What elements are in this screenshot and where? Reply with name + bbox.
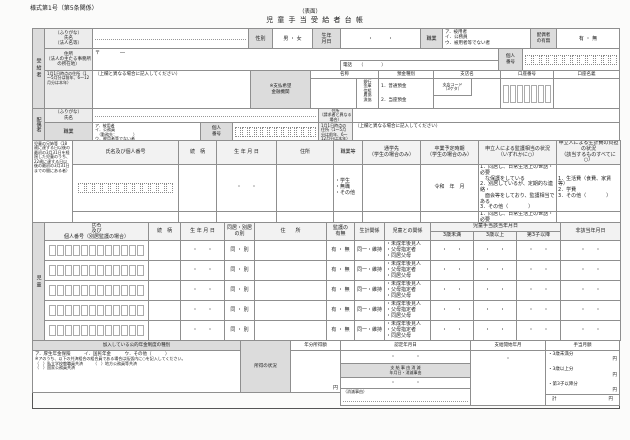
spouse-jan1-note: （上欄と異なる場合に記入してください） — [355, 124, 440, 129]
child-third-header: 第3子以降 — [517, 232, 561, 241]
spouse-name-field[interactable] — [92, 108, 319, 123]
child-living-header: 同居・別居 の別 — [225, 223, 255, 241]
child-name-cell[interactable] — [45, 301, 149, 321]
child-livelihood-cell[interactable]: 同一・維持 — [355, 281, 385, 301]
child-third-cell[interactable]: ・ ・ — [517, 301, 561, 321]
child-relationto-header: 児童との関係 — [385, 223, 431, 241]
total-label: 計 — [552, 397, 557, 402]
child-custody-header: 監護の 有無 — [327, 223, 355, 241]
spouse-jan1-field[interactable]: （上欄と異なる場合に記入してください） — [352, 122, 620, 141]
page-title: 児 童 手 当 受 給 者 台 帳 — [230, 15, 400, 25]
child-under3-cell[interactable]: ・ ・ — [431, 301, 474, 321]
job-option-other[interactable]: ウ．被用者等でない者 — [445, 41, 528, 46]
child-relation-cell[interactable] — [149, 261, 181, 281]
sex-options[interactable]: 男 ・ 女 — [272, 28, 313, 49]
sib-support-cell[interactable]: 1．生活費（食費、家賃等） 2．学費 3．その他（ ） — [557, 165, 621, 212]
jan1-note: （上欄と異なる場合に記入してください） — [95, 72, 180, 77]
child-ineligible-cell[interactable]: ・ ・ — [561, 321, 621, 341]
child-under3-cell[interactable]: ・ ・ — [431, 241, 474, 261]
child-row: ・ ・ 同 ・ 別 有 ・ 無 同一・維持 ・未成年後見人 ・父母指定者 ・同居… — [45, 261, 621, 281]
child-livelihood-cell[interactable]: 同一・維持 — [355, 321, 385, 341]
child-name-cell[interactable] — [45, 261, 149, 281]
sib-name-cell[interactable] — [73, 165, 179, 212]
child-ineligible-cell[interactable]: ・ ・ — [561, 281, 621, 301]
sib-relation-cell[interactable] — [179, 165, 217, 212]
child-livelihood-cell[interactable]: 同一・維持 — [355, 241, 385, 261]
sib-relation-header: 続 柄 — [179, 141, 217, 165]
sib-support-header: 申立人による生計費の負担の状況 （該当するものすべてに○） — [557, 141, 621, 165]
child-relationto-cell[interactable]: ・未成年後見人 ・父母指定者 ・同居父母 — [385, 241, 431, 261]
extinction-reason-field[interactable]: （消滅事由） — [340, 388, 471, 406]
form-number: 様式第1号（第5条関係） — [28, 4, 178, 14]
child-under3-header: 3歳未満 — [431, 232, 474, 241]
jan1-address-field[interactable]: （上欄と異なる場合に記入してください） — [92, 70, 251, 109]
child-name-header: 氏名 及び 個人番号（別居監護の場合） — [45, 223, 149, 241]
child-over3-cell[interactable]: ・ ・ — [474, 241, 517, 261]
spouse-presence-options[interactable]: 有 ・ 無 — [556, 28, 620, 49]
child-over3-cell[interactable]: ・ ・ — [474, 321, 517, 341]
child-birth-header: 生 年 月 日 — [181, 223, 225, 241]
child-address-cell[interactable] — [255, 301, 327, 321]
postal-mark: 〒 ― — [95, 50, 125, 56]
child-livelihood-cell[interactable]: 同一・維持 — [355, 301, 385, 321]
child-birth-cell[interactable]: ・ ・ — [181, 321, 225, 341]
child-third-cell[interactable]: ・ ・ — [517, 281, 561, 301]
children-header-row: 氏名 及び 個人番号（別居監護の場合） 続 柄 生 年 月 日 同居・別居 の別… — [45, 223, 621, 232]
monthly-under3-yen[interactable]: 円 — [548, 357, 617, 362]
child-address-cell[interactable] — [255, 261, 327, 281]
bank-type-options[interactable]: 銀行金庫信組農協漁協 — [356, 78, 379, 109]
child-row: ・ ・ 同 ・ 別 有 ・ 無 同一・維持 ・未成年後見人 ・父母指定者 ・同居… — [45, 281, 621, 301]
bank-name-field[interactable] — [310, 78, 357, 109]
child-over3-cell[interactable]: ・ ・ — [474, 261, 517, 281]
child-relationto-cell[interactable]: ・未成年後見人 ・父母指定者 ・同居父母 — [385, 261, 431, 281]
spouse-address-field[interactable] — [352, 108, 620, 123]
child-ineligible-cell[interactable]: ・ ・ — [561, 261, 621, 281]
deposit-ordinary[interactable]: 1．普通預金 — [381, 84, 431, 89]
child-over3-cell[interactable]: ・ ・ — [474, 301, 517, 321]
sib-occupation-cell[interactable]: ・学生 ・無職 ・その他 — [334, 165, 363, 212]
child-row: ・ ・ 同 ・ 別 有 ・ 無 同一・維持 ・未成年後見人 ・父母指定者 ・同居… — [45, 241, 621, 261]
child-relationto-cell[interactable]: ・未成年後見人 ・父母指定者 ・同居父母 — [385, 321, 431, 341]
child-address-cell[interactable] — [255, 321, 327, 341]
birthdate-label: 生年 月日 — [312, 28, 341, 49]
child-over3-header: 3歳以上 — [474, 232, 517, 241]
sib-address-cell[interactable] — [277, 165, 334, 212]
child-custody-cell[interactable]: 有 ・ 無 — [327, 261, 355, 281]
child-ineligible-cell[interactable]: ・ ・ — [561, 301, 621, 321]
recipient-address-label: 住所 （法人の主たる事務所の所在地） — [44, 48, 93, 71]
mynumber-boxes[interactable] — [522, 48, 620, 71]
monthly-over3-yen[interactable]: 円 — [548, 373, 617, 378]
bank-section-label: ※支払希望 金融機関 — [250, 70, 311, 109]
child-over3-cell[interactable]: ・ ・ — [474, 281, 517, 301]
extinction-reason-label: （消滅事由） — [343, 389, 367, 394]
child-third-cell[interactable]: ・ ・ — [517, 261, 561, 281]
child-relation-cell[interactable] — [149, 281, 181, 301]
spouse-mynumber-boxes[interactable] — [232, 122, 319, 141]
child-birth-cell[interactable]: ・ ・ — [181, 241, 225, 261]
deposit-current[interactable]: 2．当座預金 — [381, 98, 431, 103]
spouse-job-label: 職業 — [44, 122, 93, 141]
child-row: ・ ・ 同 ・ 別 有 ・ 無 同一・維持 ・未成年後見人 ・父母指定者 ・同居… — [45, 321, 621, 341]
child-birth-cell[interactable]: ・ ・ — [181, 301, 225, 321]
child-third-cell[interactable]: ・ ・ — [517, 241, 561, 261]
section-label-siblings: 児童の兄姉等（18歳に達する日以後の最初の3月31日を経過した児童のうち、22歳… — [32, 140, 73, 223]
child-under3-cell[interactable]: ・ ・ — [431, 261, 474, 281]
spouse-mynumber-label: 個人 番号 — [200, 122, 233, 141]
jan1-address-label: 1月1日時点の住所（1～5月分は前年、6～12月分は本年） — [44, 70, 93, 109]
spouse-presence-label: 配偶者 の有無 — [530, 28, 557, 49]
child-custody-cell[interactable]: 有 ・ 無 — [327, 241, 355, 261]
spouse-name-label: （ふりがな） 氏名 — [44, 108, 93, 123]
monthly-total-row[interactable]: 計 円 — [545, 394, 620, 406]
sib-graduation-cell[interactable]: 令和 年 月 — [421, 165, 479, 212]
child-living-cell[interactable]: 同 ・ 別 — [225, 241, 255, 261]
child-livelihood-cell[interactable]: 同一・維持 — [355, 261, 385, 281]
deposit-type-options[interactable]: 1．普通預金 2．当座預金 — [378, 78, 434, 109]
child-relation-header: 続 柄 — [149, 223, 181, 241]
sex-label: 性別 — [248, 28, 273, 49]
child-under3-cell[interactable]: ・ ・ — [431, 281, 474, 301]
child-relation-cell[interactable] — [149, 241, 181, 261]
sibling-row: ・ ・ ・学生 ・無職 ・その他 令和 年 月 1．同居し、日常生活上の世話・必… — [73, 165, 621, 212]
child-birth-cell[interactable]: ・ ・ — [181, 281, 225, 301]
child-living-cell[interactable]: 同 ・ 別 — [225, 261, 255, 281]
child-name-cell[interactable] — [45, 281, 149, 301]
child-eligible-group-header: 児童手当該当年月日 — [431, 223, 561, 232]
sib-birth-cell[interactable]: ・ ・ — [217, 165, 277, 212]
child-under3-cell[interactable]: ・ ・ — [431, 321, 474, 341]
child-custody-cell[interactable]: 有 ・ 無 — [327, 321, 355, 341]
child-address-cell[interactable] — [255, 281, 327, 301]
branch-code-field[interactable]: 支店コード （3ケタ） — [433, 78, 472, 96]
income-amount-field[interactable]: 円 — [290, 350, 341, 393]
nintei-date-field[interactable]: ・ ・ — [340, 350, 471, 364]
child-name-cell[interactable] — [45, 241, 149, 261]
child-relationto-cell[interactable]: ・未成年後見人 ・父母指定者 ・同居父母 — [385, 281, 431, 301]
sib-school-header: 通学先 （学生の場合のみ） — [363, 141, 421, 165]
extinction-header: 支 給 事 由 消 滅 年月日・消滅事由 — [340, 363, 471, 378]
child-relation-cell[interactable] — [149, 321, 181, 341]
recipient-name-label: （ふりがな） 氏名 （法人名等） — [44, 28, 93, 49]
child-ineligible-cell[interactable]: ・ ・ — [561, 241, 621, 261]
pension-kyosai-options[interactable]: （ ）私立学校教職員共済 （ ）地方公務員等共済 （ ）国家公務員共済 — [35, 362, 238, 371]
child-livelihood-header: 生計関係 — [355, 223, 385, 241]
spouse-jan1-label: 1月1日時点の住所（1～5月分は前年、6～12月分は本年） — [318, 122, 353, 141]
sib-care-header: 申立人による監護相当の状況 （いずれかに○） — [479, 141, 557, 165]
sib-graduation-header: 卒業予定時期 （学生の場合のみ） — [421, 141, 479, 165]
child-birth-cell[interactable]: ・ ・ — [181, 261, 225, 281]
sib-school-cell[interactable] — [363, 165, 421, 212]
child-custody-cell[interactable]: 有 ・ 無 — [327, 281, 355, 301]
child-living-cell[interactable]: 同 ・ 別 — [225, 281, 255, 301]
job-label: 職業 — [420, 28, 443, 49]
child-living-cell[interactable]: 同 ・ 別 — [225, 321, 255, 341]
child-name-cell[interactable] — [45, 321, 149, 341]
child-relationto-cell[interactable]: ・未成年後見人 ・父母指定者 ・同居父母 — [385, 301, 431, 321]
child-custody-cell[interactable]: 有 ・ 無 — [327, 301, 355, 321]
account-holder-field[interactable] — [553, 78, 620, 109]
child-row: ・ ・ 同 ・ 別 有 ・ 無 同一・維持 ・未成年後見人 ・父母指定者 ・同居… — [45, 301, 621, 321]
child-address-header: 住 所 — [255, 223, 327, 241]
child-relation-cell[interactable] — [149, 301, 181, 321]
child-living-cell[interactable]: 同 ・ 別 — [225, 301, 255, 321]
child-address-cell[interactable] — [255, 241, 327, 261]
sib-care-cell[interactable]: 1．同居し、日常生活上の世話・必要 な保護をしている 2．別居しているが、定期的… — [479, 165, 557, 212]
income-yen-unit: 円 — [333, 385, 338, 391]
spouse-job-options[interactable]: ア．被用者イ．公務員 （勤務先： ）ウ．被用者等でない者 — [92, 122, 201, 141]
income-status-label: 所得の状況 — [240, 340, 291, 393]
total-yen: 円 — [609, 397, 614, 402]
siblings-header-row: 氏名及び個人番号 続 柄 生 年 月 日 住所 職業等 通学先 （学生の場合のみ… — [73, 141, 621, 165]
job-options[interactable]: ア．被用者 イ．公務員 ウ．被用者等でない者 — [442, 28, 531, 49]
mynumber-label: 個人 番号 — [498, 48, 523, 71]
sib-address-header: 住所 — [277, 141, 334, 165]
sib-birth-header: 生 年 月 日 — [217, 141, 277, 165]
monthly-third-yen[interactable]: 円 — [548, 388, 617, 393]
child-ineligible-header: 非該当年月日 — [561, 223, 621, 241]
account-number-boxes[interactable] — [500, 78, 554, 109]
sib-name-header: 氏名及び個人番号 — [73, 141, 179, 165]
monthly-amount-field[interactable]: ・3歳未満分円 ・3歳以上分円 ・第3子以降分円 — [545, 350, 620, 395]
birthdate-field[interactable]: ・ ・ — [340, 28, 421, 49]
children-table: 氏名 及び 個人番号（別居監護の場合） 続 柄 生 年 月 日 同居・別居 の別… — [44, 222, 621, 341]
sib-occupation-header: 職業等 — [334, 141, 363, 165]
child-third-cell[interactable]: ・ ・ — [517, 321, 561, 341]
spouse-address-label: 住所 （請求者と異なる場合） — [318, 108, 353, 123]
recipient-name-field[interactable] — [92, 28, 249, 49]
payment-start-field[interactable]: ・ — [470, 350, 546, 406]
pension-options[interactable]: ア．厚生年金保険 イ．国民年金 ウ．その他（ ） ※アのうち、以下の共済組合の組… — [32, 350, 241, 393]
